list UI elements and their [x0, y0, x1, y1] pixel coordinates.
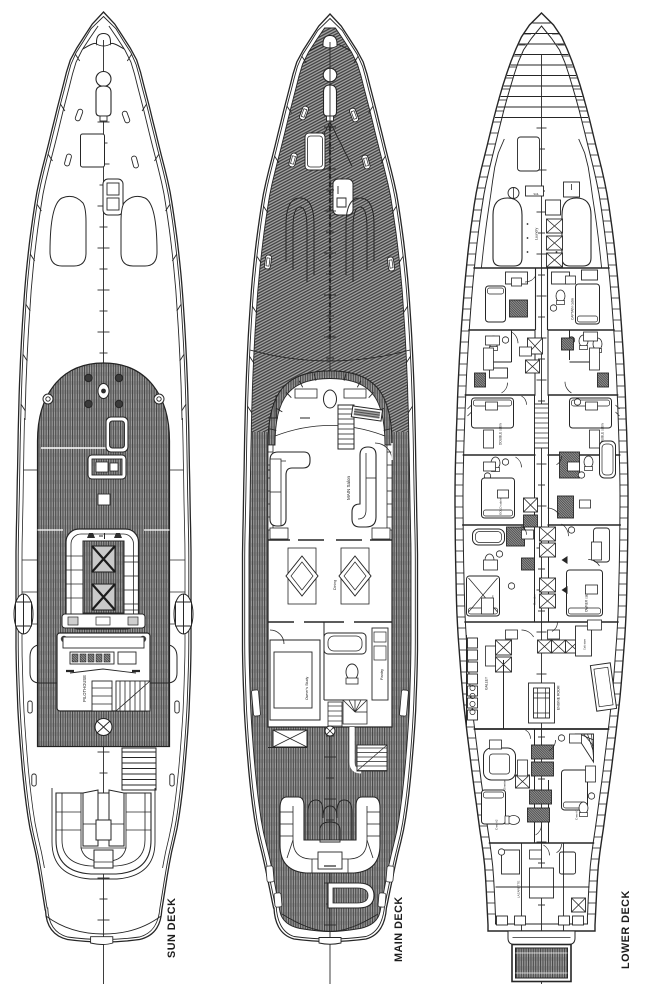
svg-text:CAPTAIN cabin: CAPTAIN cabin: [571, 298, 575, 320]
svg-text:LAZARETTE: LAZARETTE: [517, 881, 521, 898]
svg-text:GALLEY: GALLEY: [485, 676, 489, 690]
svg-text:MAIN Salon: MAIN Salon: [346, 475, 351, 500]
svg-text:Owner's Study: Owner's Study: [305, 677, 309, 700]
svg-text:Cold store: Cold store: [584, 638, 587, 650]
svg-text:SUN DECK: SUN DECK: [166, 898, 178, 958]
svg-text:Dining: Dining: [333, 580, 337, 590]
svg-text:MAIN DECK: MAIN DECK: [393, 896, 405, 962]
svg-text:Dinette: Dinette: [503, 780, 507, 790]
svg-text:SAIL: SAIL: [534, 193, 540, 196]
svg-text:GOLD cabin: GOLD cabin: [499, 498, 503, 515]
svg-text:Pantry: Pantry: [380, 669, 384, 680]
svg-text:Laundry: Laundry: [535, 227, 539, 240]
svg-text:Crew #1: Crew #1: [575, 809, 579, 820]
svg-text:DOUBLE cabin: DOUBLE cabin: [499, 423, 503, 445]
svg-text:Corridor: Corridor: [533, 594, 537, 605]
svg-text:ENGINE ROOM: ENGINE ROOM: [557, 685, 561, 710]
svg-text:Crew #2: Crew #2: [495, 819, 499, 830]
svg-text:LOWER DECK: LOWER DECK: [620, 890, 632, 969]
svg-text:PILOTHOUSE: PILOTHOUSE: [82, 675, 87, 702]
